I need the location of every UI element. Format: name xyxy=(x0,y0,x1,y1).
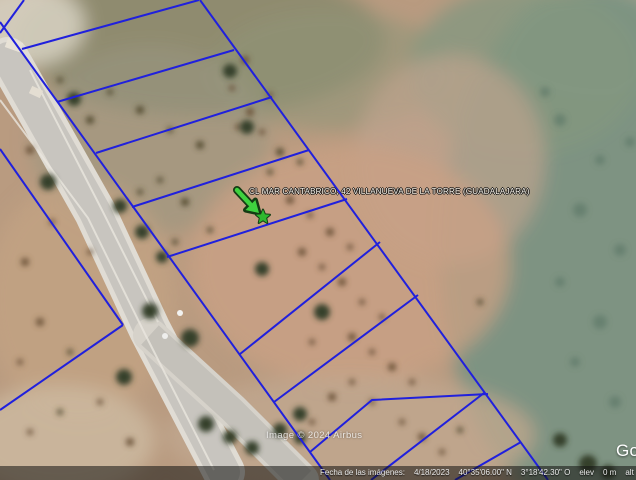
placemark-address-label: CL MAR CANTABRICO, 42 VILLANUEVA DE LA T… xyxy=(249,187,549,196)
status-trailing-clipped: alt xyxy=(625,468,633,477)
elevation-value: 0 m xyxy=(603,468,616,477)
placemark[interactable] xyxy=(0,0,636,480)
imagery-date-value: 4/18/2023 xyxy=(414,468,450,477)
imagery-date-label: Fecha de las imágenes: xyxy=(320,468,405,477)
google-logo: Google xyxy=(616,441,636,461)
latitude-value: 40°35'06.00" N xyxy=(459,468,512,477)
status-bar: Fecha de las imágenes: 4/18/2023 40°35'0… xyxy=(0,466,636,480)
longitude-value: 3°18'42.30" O xyxy=(521,468,570,477)
map-viewport[interactable]: Image © 2024 Airbus CL MAR CANTABRICO, 4… xyxy=(0,0,636,480)
elevation-label: elev xyxy=(579,468,594,477)
